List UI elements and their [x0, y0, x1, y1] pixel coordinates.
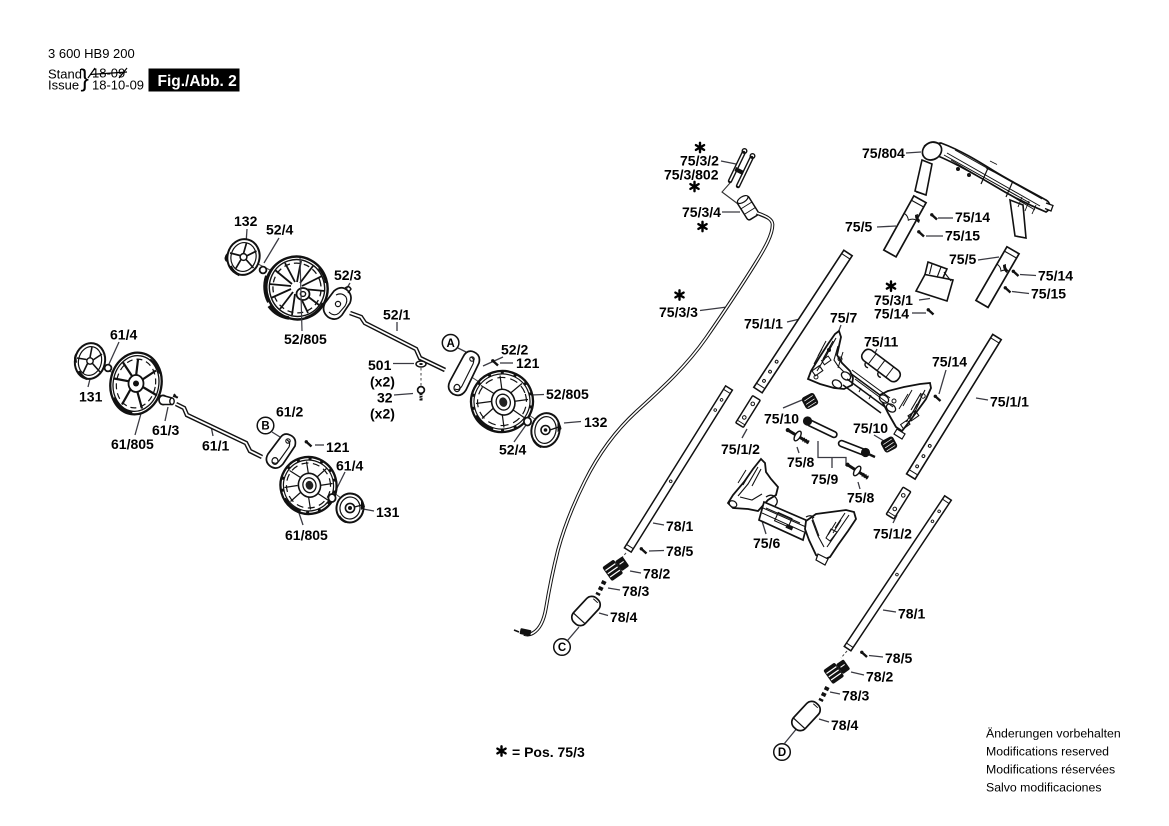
svg-text:75/14: 75/14	[955, 209, 990, 225]
svg-text:61/805: 61/805	[111, 436, 154, 452]
svg-text:61/4: 61/4	[110, 327, 137, 343]
svg-text:Salvo modificaciones: Salvo modificaciones	[986, 781, 1102, 795]
svg-text:75/9: 75/9	[811, 471, 838, 487]
svg-text:75/1/2: 75/1/2	[721, 441, 760, 457]
svg-text:75/15: 75/15	[1031, 286, 1066, 302]
svg-text:Fig./Abb. 2: Fig./Abb. 2	[158, 73, 237, 90]
svg-text:121: 121	[326, 439, 350, 455]
svg-text:75/15: 75/15	[945, 228, 980, 244]
svg-text:Modifications réservées: Modifications réservées	[986, 763, 1115, 777]
svg-text:75/8: 75/8	[847, 490, 874, 506]
svg-text:75/10: 75/10	[764, 411, 799, 427]
svg-text:75/5: 75/5	[949, 251, 976, 267]
svg-text:52/3: 52/3	[334, 267, 361, 283]
svg-text:61/805: 61/805	[285, 527, 328, 543]
svg-text:78/2: 78/2	[643, 566, 670, 582]
svg-text:Modifications reserved: Modifications reserved	[986, 745, 1109, 759]
svg-text:78/4: 78/4	[610, 609, 637, 625]
svg-text:61/3: 61/3	[152, 422, 179, 438]
svg-text:= Pos. 75/3: = Pos. 75/3	[512, 744, 585, 760]
svg-text:75/14: 75/14	[1038, 268, 1073, 284]
svg-text:75/3/4: 75/3/4	[682, 204, 721, 220]
svg-text:78/1: 78/1	[666, 518, 693, 534]
svg-text:75/1/2: 75/1/2	[873, 526, 912, 542]
svg-text:132: 132	[584, 414, 608, 430]
svg-text:75/7: 75/7	[830, 310, 857, 326]
svg-text:131: 131	[376, 504, 400, 520]
svg-text:61/1: 61/1	[202, 438, 229, 454]
svg-text:75/3/802: 75/3/802	[664, 167, 719, 183]
svg-text:78/3: 78/3	[622, 583, 649, 599]
svg-text:75/1/1: 75/1/1	[744, 316, 783, 332]
svg-text:B: B	[261, 421, 269, 433]
svg-text:75/14: 75/14	[932, 354, 967, 370]
svg-text:75/14: 75/14	[874, 306, 909, 322]
svg-text:75/8: 75/8	[787, 454, 814, 470]
svg-text:D: D	[778, 747, 786, 759]
svg-text:61/2: 61/2	[276, 404, 303, 420]
svg-text:32: 32	[377, 390, 393, 406]
svg-text:132: 132	[234, 213, 258, 229]
svg-text:78/3: 78/3	[842, 688, 869, 704]
svg-text:(x2): (x2)	[370, 374, 395, 390]
svg-text:78/1: 78/1	[898, 606, 925, 622]
svg-text:52/1: 52/1	[383, 307, 410, 323]
svg-text:(x2): (x2)	[370, 406, 395, 422]
svg-text:75/10: 75/10	[853, 420, 888, 436]
svg-text:501: 501	[368, 357, 392, 373]
svg-text:C: C	[558, 642, 566, 654]
svg-text:78/5: 78/5	[885, 650, 912, 666]
svg-text:78/5: 78/5	[666, 543, 693, 559]
svg-text:131: 131	[79, 389, 103, 405]
svg-text:75/6: 75/6	[753, 535, 780, 551]
svg-text:3 600 HB9 200: 3 600 HB9 200	[48, 46, 135, 61]
svg-text:75/5: 75/5	[845, 219, 872, 235]
svg-text:75/3/3: 75/3/3	[659, 304, 698, 320]
svg-text:121: 121	[516, 355, 540, 371]
svg-text:52/4: 52/4	[266, 222, 293, 238]
svg-text:A: A	[446, 338, 454, 350]
svg-text:78/4: 78/4	[831, 717, 858, 733]
svg-text:52/4: 52/4	[499, 442, 526, 458]
svg-text:75/804: 75/804	[862, 145, 905, 161]
svg-text:61/4: 61/4	[336, 458, 363, 474]
svg-text:78/2: 78/2	[866, 669, 893, 685]
svg-text:}: }	[81, 65, 89, 93]
svg-text:Änderungen vorbehalten: Änderungen vorbehalten	[986, 727, 1121, 741]
svg-text:52/805: 52/805	[284, 331, 327, 347]
svg-text:52/805: 52/805	[546, 386, 589, 402]
svg-text:18-10-09: 18-10-09	[92, 78, 144, 93]
svg-text:75/11: 75/11	[864, 334, 898, 350]
svg-text:Issue: Issue	[48, 78, 79, 93]
svg-text:75/1/1: 75/1/1	[990, 394, 1029, 410]
